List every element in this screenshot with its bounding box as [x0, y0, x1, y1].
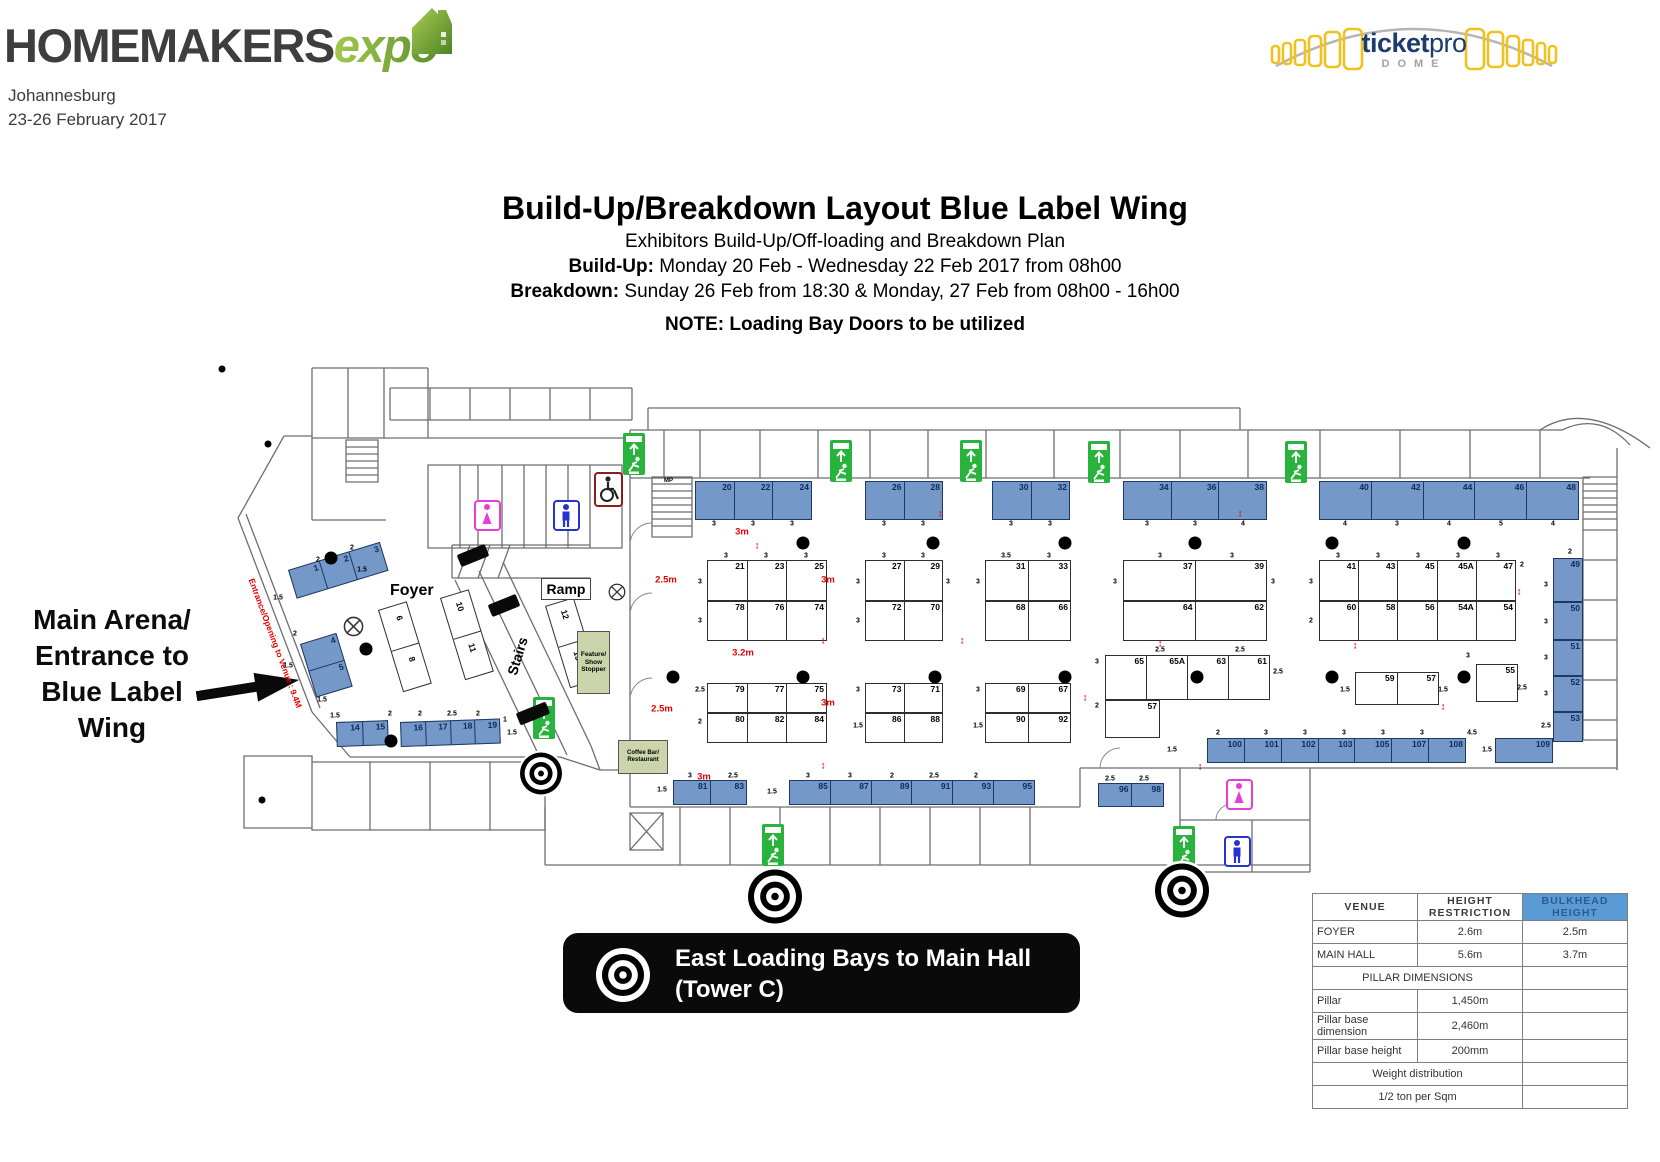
booth-dimension: 3 — [1264, 730, 1268, 737]
booth-dimension: 1.5 — [330, 713, 340, 720]
booth-85: 85 — [790, 781, 830, 804]
booth-67: 67 — [1028, 684, 1071, 712]
spec-cell: Pillar — [1313, 990, 1418, 1013]
booth-3: 3 — [349, 543, 387, 579]
booth-54: 54 — [1476, 602, 1515, 640]
booth-77: 77 — [747, 684, 787, 712]
booth-group: 45 — [300, 633, 353, 698]
booth-dimension: 3 — [1193, 521, 1197, 528]
booth-dimension: 3 — [1336, 553, 1340, 560]
dimension-label: 2.5m — [651, 704, 673, 715]
spec-empty-cell — [1523, 967, 1628, 990]
spec-header-0: VENUE — [1313, 894, 1418, 921]
booth-dimension: 3 — [1113, 579, 1117, 586]
booth-57: 57 — [1106, 701, 1159, 737]
booth-dimension: 2 — [350, 545, 354, 552]
booth-dimension: 2.5 — [1235, 647, 1245, 654]
booth-dimension: 2 — [698, 719, 702, 726]
booth-31: 31 — [986, 561, 1028, 600]
plan-label-stairs: Stairs — [504, 635, 531, 677]
booth-59: 59 — [1356, 673, 1397, 704]
booth-dimension: 3 — [804, 553, 808, 560]
booth-69: 69 — [986, 684, 1028, 712]
booth-28: 28 — [904, 482, 943, 519]
booth-25: 25 — [786, 561, 826, 600]
female-toilet-icon — [474, 500, 501, 531]
booth-dimension: 3 — [1048, 521, 1052, 528]
booth-dimension: 3 — [1544, 582, 1548, 589]
plan-label-foyer: Foyer — [390, 582, 434, 600]
booth-46: 46 — [1474, 482, 1526, 519]
booth-dimension: 2 — [1309, 618, 1313, 625]
booth-dimension: 1 — [503, 717, 507, 724]
booth-66: 66 — [1028, 602, 1071, 640]
booth-group: 202224 — [695, 481, 812, 520]
spec-cell: 5.6m — [1418, 944, 1523, 967]
booth-50: 50 — [1554, 603, 1582, 639]
spec-header-2: BULKHEAD HEIGHT — [1523, 894, 1628, 921]
booth-dimension: 3 — [1466, 653, 1470, 660]
booth-92: 92 — [1028, 714, 1071, 742]
booth-dimension: 2.5 — [929, 773, 939, 780]
spec-header-1: HEIGHT RESTRICTION — [1418, 894, 1523, 921]
pillar — [325, 552, 338, 565]
booth-dimension: 3 — [712, 521, 716, 528]
banner-line1: East Loading Bays to Main Hall — [675, 943, 1031, 974]
spec-cell — [1523, 990, 1628, 1013]
booth-8: 8 — [391, 642, 430, 691]
spec-cell — [1523, 1013, 1628, 1040]
booth-dimension: 3 — [1047, 553, 1051, 560]
spec-span-cell: PILLAR DIMENSIONS — [1313, 967, 1523, 990]
booth-dimension: 4 — [1551, 521, 1555, 528]
booth-dimension: 3 — [1395, 521, 1399, 528]
booth-27: 27 — [866, 561, 904, 600]
exit-sign-icon — [762, 824, 784, 866]
booth-82: 82 — [747, 714, 787, 742]
male-toilet-icon — [553, 500, 580, 531]
dimension-arrow-icon: ↕ — [1198, 762, 1203, 773]
booth-dimension: 3 — [790, 521, 794, 528]
booth-dimension: 1.5 — [657, 787, 667, 794]
booth-84: 84 — [786, 714, 826, 742]
dimension-label: 3m — [735, 527, 749, 538]
booth-group: 787674 — [707, 601, 827, 641]
pillar — [1326, 537, 1339, 550]
male-toilet-icon — [1224, 836, 1251, 867]
pillar — [1458, 537, 1471, 550]
booth-dimension: 2.5 — [1105, 776, 1115, 783]
booth-dimension: 1.5 — [273, 595, 283, 602]
booth-dimension: 2.5 — [695, 687, 705, 694]
booth-group: 1011 — [440, 589, 494, 680]
booth-68: 68 — [986, 602, 1028, 640]
booth-91: 91 — [911, 781, 952, 804]
booth-58: 58 — [1358, 602, 1397, 640]
booth-group: 343638 — [1123, 481, 1267, 520]
booth-43: 43 — [1358, 561, 1397, 600]
booth-group: 3032 — [992, 481, 1070, 520]
dimension-label: 3m — [697, 772, 711, 783]
loading-bay-target-icon — [745, 867, 805, 932]
booth-group: 8183 — [673, 780, 747, 805]
booth-dimension: 1.5 — [1438, 687, 1448, 694]
spec-row: Pillar base dimension2,460m — [1313, 1013, 1628, 1040]
pillar — [360, 643, 373, 656]
dimension-arrow-icon: ↕ — [1083, 693, 1088, 704]
booth-16: 16 — [401, 722, 426, 746]
booth-57: 57 — [1397, 673, 1439, 704]
dimension-arrow-icon: ↕ — [1441, 702, 1446, 713]
booth-41: 41 — [1320, 561, 1358, 600]
dot — [265, 441, 272, 448]
spec-cell: 200mm — [1418, 1040, 1523, 1063]
pillar — [1326, 671, 1339, 684]
pillar — [1059, 671, 1072, 684]
booth-65: 65 — [1106, 656, 1146, 699]
booth-19: 19 — [474, 720, 500, 744]
banner-text: East Loading Bays to Main Hall (Tower C) — [675, 943, 1031, 1005]
booth-36: 36 — [1171, 482, 1219, 519]
pillar — [927, 537, 940, 550]
booth-44: 44 — [1423, 482, 1475, 519]
booth-dimension: 2 — [890, 773, 894, 780]
pillar — [1458, 671, 1471, 684]
booth-101: 101 — [1244, 739, 1281, 762]
spec-row: FOYER2.6m2.5m — [1313, 921, 1628, 944]
booth-dimension: 2 — [476, 711, 480, 718]
plan-label-feature: Feature/ Show Stopper — [577, 631, 610, 694]
booth-76: 76 — [747, 602, 787, 640]
booth-51: 51 — [1554, 641, 1582, 675]
booth-dimension: 3 — [1376, 553, 1380, 560]
booth-93: 93 — [952, 781, 993, 804]
booth-73: 73 — [866, 684, 904, 712]
booth-dimension: 3 — [688, 773, 692, 780]
booth-100: 100 — [1208, 739, 1244, 762]
spec-cell: MAIN HALL — [1313, 944, 1418, 967]
booth-dimension: 3 — [976, 687, 980, 694]
spec-empty-cell — [1523, 1063, 1628, 1086]
booth-group: 100101102103105107108 — [1207, 738, 1466, 763]
booth-group: 212325 — [707, 560, 827, 601]
booth-24: 24 — [772, 482, 811, 519]
booth-dimension: 2.5 — [1139, 776, 1149, 783]
loading-bay-target-icon — [517, 750, 565, 803]
spec-span-cell: Weight distribution — [1313, 1063, 1523, 1086]
booth-group: 8688 — [865, 713, 943, 743]
pillar — [385, 735, 398, 748]
booth-dimension: 3 — [1456, 553, 1460, 560]
booth-group: 6866 — [985, 601, 1071, 641]
booth-group: 50 — [1553, 602, 1583, 640]
booth-dimension: 2 — [316, 557, 320, 564]
booth-dimension: 2 — [418, 711, 422, 718]
dimension-arrow-icon: ↕ — [938, 509, 943, 520]
booth-34: 34 — [1124, 482, 1171, 519]
dimension-label: 3.2m — [732, 648, 754, 659]
booth-40: 40 — [1320, 482, 1371, 519]
booth-dimension: 3 — [1230, 553, 1234, 560]
pillar — [1191, 671, 1204, 684]
booth-dimension: 3 — [1158, 553, 1162, 560]
dimension-arrow-icon: ↕ — [1353, 641, 1358, 652]
booth-86: 86 — [866, 714, 904, 742]
booth-dimension: 2 — [974, 773, 978, 780]
spec-span-cell: 1/2 ton per Sqm — [1313, 1086, 1523, 1109]
stair-barrier — [457, 544, 490, 567]
booth-95: 95 — [993, 781, 1034, 804]
plan-label-coffee: Coffee Bar/ Restaurant — [618, 740, 668, 774]
booth-dimension: 3 — [856, 618, 860, 625]
exit-sign-icon — [830, 440, 852, 482]
booth-group: 6967 — [985, 683, 1071, 713]
booth-49: 49 — [1554, 559, 1582, 601]
booth-dimension: 2.5 — [728, 773, 738, 780]
booth-group: 68 — [378, 601, 432, 692]
booth-dimension: 2 — [1568, 549, 1572, 556]
spec-row: Weight distribution — [1313, 1063, 1628, 1086]
booth-dimension: 3 — [1271, 579, 1275, 586]
booth-group: 5957 — [1355, 672, 1439, 705]
booth-dimension: 2 — [293, 631, 297, 638]
booth-62: 62 — [1195, 602, 1267, 640]
spec-cell — [1523, 1040, 1628, 1063]
dimension-label: 3m — [821, 698, 835, 709]
booth-109: 109 — [1496, 739, 1552, 762]
booth-dimension: 2 — [1216, 730, 1220, 737]
booth-42: 42 — [1371, 482, 1423, 519]
booth-30: 30 — [993, 482, 1031, 519]
booth-dimension: 2 — [1520, 562, 1524, 569]
plan-label-ramp: Ramp — [541, 578, 591, 600]
pillar — [797, 671, 810, 684]
booth-group: 16171819 — [400, 719, 501, 747]
booth-47: 47 — [1476, 561, 1515, 600]
booth-102: 102 — [1281, 739, 1318, 762]
pillar — [797, 537, 810, 550]
booth-dimension: 2.5 — [1155, 647, 1165, 654]
exit-sign-icon — [1088, 441, 1110, 483]
exit-sign-icon — [623, 433, 645, 475]
booth-dimension: 3 — [882, 521, 886, 528]
dimension-arrow-icon: ↕ — [755, 541, 760, 552]
booth-group: 41434545A47 — [1319, 560, 1516, 601]
booth-dimension: 3 — [1544, 691, 1548, 698]
booth-108: 108 — [1428, 739, 1465, 762]
booth-56: 56 — [1397, 602, 1436, 640]
booth-107: 107 — [1391, 739, 1428, 762]
spec-cell: Pillar base height — [1313, 1040, 1418, 1063]
booth-group: 3133 — [985, 560, 1071, 601]
booth-32: 32 — [1031, 482, 1070, 519]
dimension-arrow-icon: ↕ — [1517, 587, 1522, 598]
booth-dimension: 3 — [1095, 659, 1099, 666]
booth-dimension: 2.5 — [1541, 723, 1551, 730]
loading-bay-target-icon — [593, 945, 653, 1010]
booth-39: 39 — [1195, 561, 1267, 600]
booth-21: 21 — [708, 561, 747, 600]
booth-48: 48 — [1526, 482, 1578, 519]
dimension-arrow-icon: ↕ — [821, 761, 826, 772]
booth-71: 71 — [904, 684, 943, 712]
booth-group: 53 — [1553, 712, 1583, 742]
booth-17: 17 — [425, 721, 451, 745]
booth-group: 109 — [1495, 738, 1553, 763]
exit-sign-icon — [960, 440, 982, 482]
booth-group: 7371 — [865, 683, 943, 713]
booth-dimension: 2.5 — [1517, 685, 1527, 692]
booth-group: 9092 — [985, 713, 1071, 743]
booth-group: 6565A6361 — [1105, 655, 1270, 700]
booth-dimension: 1.5 — [1167, 747, 1177, 754]
dimension-arrow-icon: ↕ — [1238, 509, 1243, 520]
dot — [219, 366, 226, 373]
booth-89: 89 — [871, 781, 912, 804]
spec-row: Pillar1,450m — [1313, 990, 1628, 1013]
spec-row: 1/2 ton per Sqm — [1313, 1086, 1628, 1109]
booth-98: 98 — [1131, 784, 1164, 806]
booth-87: 87 — [830, 781, 871, 804]
dimension-label: 2.5m — [655, 575, 677, 586]
booth-83: 83 — [710, 781, 747, 804]
east-loading-bays-banner: East Loading Bays to Main Hall (Tower C) — [563, 933, 1080, 1013]
booth-dimension: 4 — [1241, 521, 1245, 528]
spec-cell: FOYER — [1313, 921, 1418, 944]
booth-dimension: 3 — [724, 553, 728, 560]
booth-dimension: 3 — [921, 553, 925, 560]
booth-group: 60585654A54 — [1319, 601, 1516, 641]
booth-group: 49 — [1553, 558, 1583, 602]
spec-row: MAIN HALL5.6m3.7m — [1313, 944, 1628, 967]
booth-dimension: 5 — [1499, 521, 1503, 528]
booth-dimension: 3 — [1420, 730, 1424, 737]
spec-row: Pillar base height200mm — [1313, 1040, 1628, 1063]
booth-dimension: 3 — [698, 618, 702, 625]
booth-dimension: 4.5 — [1467, 730, 1477, 737]
booth-dimension: 4 — [1447, 521, 1451, 528]
booth-78: 78 — [708, 602, 747, 640]
booth-group: 2628 — [865, 481, 943, 520]
booth-dimension: 3 — [848, 773, 852, 780]
booth-79: 79 — [708, 684, 747, 712]
pillar — [929, 671, 942, 684]
booth-dimension: 3 — [1381, 730, 1385, 737]
booth-81: 81 — [674, 781, 710, 804]
booth-dimension: 2 — [388, 711, 392, 718]
booth-dimension: 3 — [806, 773, 810, 780]
booth-group: 9698 — [1098, 783, 1164, 807]
spec-cell: 2,460m — [1418, 1013, 1523, 1040]
dimension-arrow-icon: ↕ — [821, 636, 826, 647]
booth-11: 11 — [453, 630, 492, 679]
booth-dimension: 3 — [1009, 521, 1013, 528]
booth-dimension: 2 — [1095, 703, 1099, 710]
booth-group: 123 — [288, 542, 389, 599]
booth-dimension: 3.5 — [1001, 553, 1011, 560]
booth-dimension: 3 — [1416, 553, 1420, 560]
booth-80: 80 — [708, 714, 747, 742]
booth-dimension: 3 — [764, 553, 768, 560]
venue-spec-table: VENUEHEIGHT RESTRICTIONBULKHEAD HEIGHTFO… — [1312, 893, 1628, 1109]
booth-103: 103 — [1318, 739, 1355, 762]
spec-cell: Pillar base dimension — [1313, 1013, 1418, 1040]
booth-group: 55 — [1476, 664, 1518, 702]
booth-group: 7270 — [865, 601, 943, 641]
booth-105: 105 — [1354, 739, 1391, 762]
spec-cell: 2.5m — [1523, 921, 1628, 944]
booth-72: 72 — [866, 602, 904, 640]
booth-22: 22 — [734, 482, 773, 519]
booth-75: 75 — [786, 684, 826, 712]
booth-dimension: 3 — [751, 521, 755, 528]
booth-dimension: 3 — [1309, 579, 1313, 586]
pillar — [667, 671, 680, 684]
booth-group: 4042444648 — [1319, 481, 1579, 520]
loading-bay-target-icon — [1152, 861, 1212, 926]
pillar — [1059, 537, 1072, 550]
booth-74: 74 — [786, 602, 826, 640]
booth-dimension: 1.5 — [1340, 687, 1350, 694]
booth-90: 90 — [986, 714, 1028, 742]
booth-54A: 54A — [1437, 602, 1476, 640]
stair-barrier — [488, 594, 521, 617]
banner-line2: (Tower C) — [675, 974, 1031, 1005]
dimension-label: 3m — [821, 575, 835, 586]
booth-37: 37 — [1124, 561, 1195, 600]
booth-dimension: 3 — [856, 687, 860, 694]
crossed-circle-icon — [343, 616, 364, 642]
booth-dimension: 3 — [698, 579, 702, 586]
booth-61: 61 — [1228, 656, 1269, 699]
spec-cell: 1,450m — [1418, 990, 1523, 1013]
page: HOMEMAKERSexpo Johannesburg 23-26 Februa… — [0, 0, 1660, 1162]
booth-dimension: 3 — [1145, 521, 1149, 528]
booth-group: 808284 — [707, 713, 827, 743]
booth-dimension: 1.5 — [973, 723, 983, 730]
booth-dimension: 3 — [976, 579, 980, 586]
booth-26: 26 — [866, 482, 904, 519]
booth-29: 29 — [904, 561, 943, 600]
booth-dimension: 4 — [1343, 521, 1347, 528]
spec-empty-cell — [1523, 1086, 1628, 1109]
plan-label-mp: MP — [664, 478, 673, 485]
pillar — [1189, 537, 1202, 550]
booth-70: 70 — [904, 602, 943, 640]
female-toilet-icon — [1226, 779, 1253, 810]
booth-45: 45 — [1397, 561, 1436, 600]
dot — [259, 797, 266, 804]
spec-cell: 3.7m — [1523, 944, 1628, 967]
spec-row: PILLAR DIMENSIONS — [1313, 967, 1628, 990]
booth-dimension: 1.5 — [317, 697, 327, 704]
exit-sign-icon — [1285, 441, 1307, 483]
booth-group: 51 — [1553, 640, 1583, 676]
booth-dimension: 1.5 — [283, 663, 293, 670]
booth-dimension: 3 — [856, 579, 860, 586]
booth-18: 18 — [450, 720, 476, 744]
booth-dimension: 3 — [1544, 655, 1548, 662]
booth-group: 52 — [1553, 676, 1583, 712]
booth-group: 57 — [1105, 700, 1160, 738]
booth-dimension: 3 — [1303, 730, 1307, 737]
booth-dimension: 1.5 — [1482, 747, 1492, 754]
booth-group: 858789919395 — [789, 780, 1035, 805]
booth-dimension: 3 — [946, 579, 950, 586]
booth-52: 52 — [1554, 677, 1582, 711]
booth-dimension: 1.5 — [507, 730, 517, 737]
booth-dimension: 3 — [1544, 619, 1548, 626]
